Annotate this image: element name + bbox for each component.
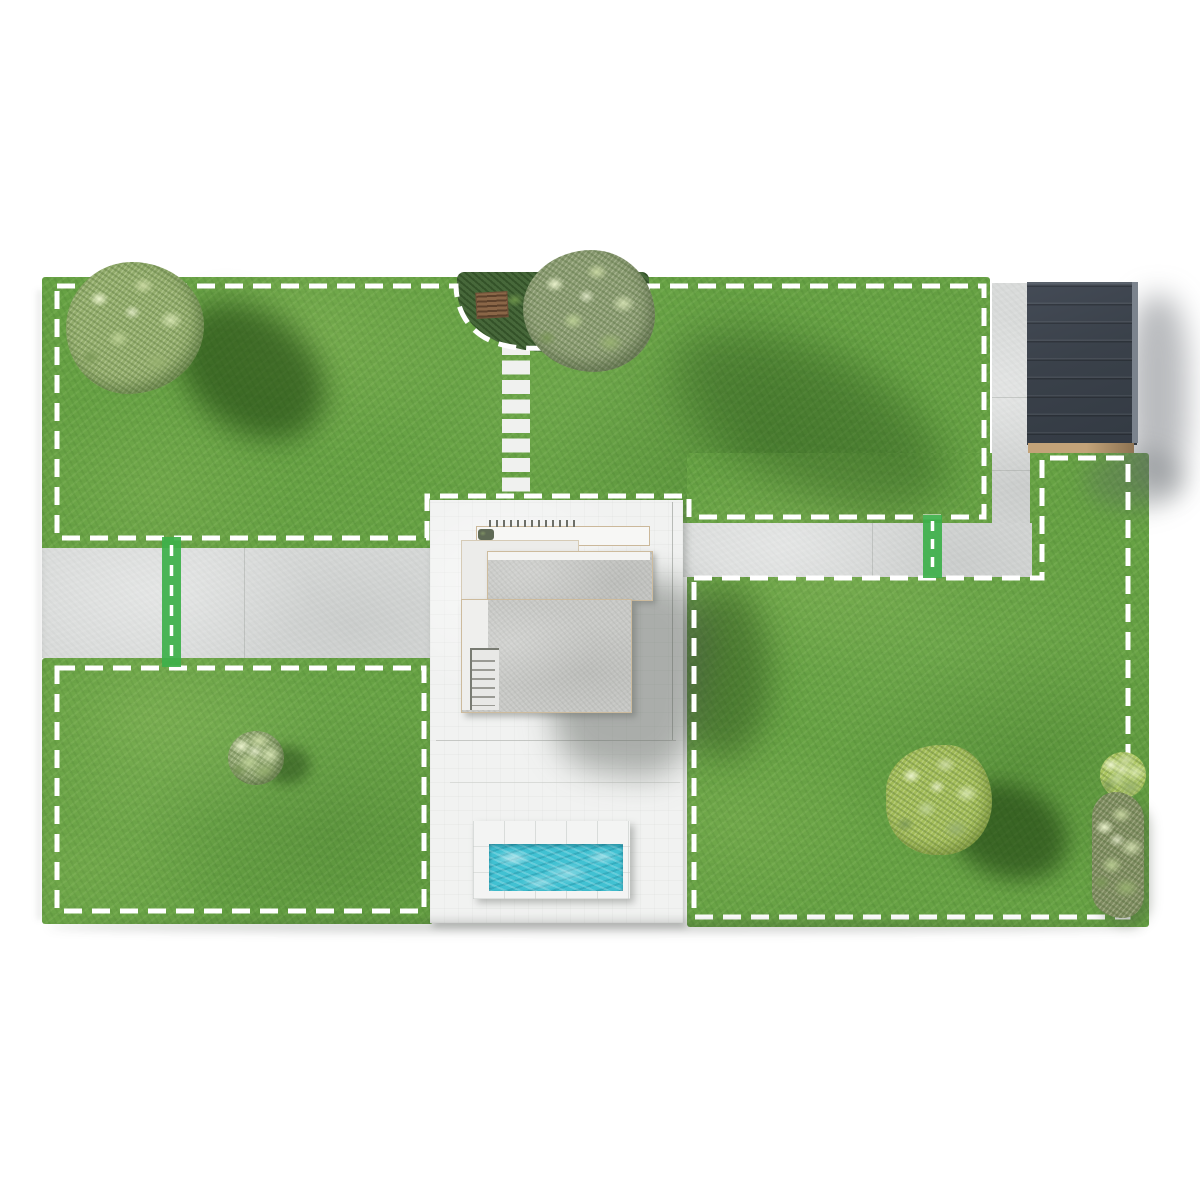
edge-shrub-bright (1100, 752, 1146, 798)
zone-boundary-bottom-left-lawn[interactable] (57, 668, 424, 911)
scene-bottom-shadow (48, 921, 1143, 932)
bright-tree-bottom-right (886, 745, 992, 855)
garden-map-canvas (0, 0, 1200, 1200)
passage-marker-left[interactable] (162, 537, 181, 667)
scene-left-shadow (37, 290, 42, 920)
passage-marker-right[interactable] (923, 515, 942, 578)
edge-shrubs-olive (1092, 792, 1144, 918)
zone-overlay (0, 0, 1200, 1200)
round-shrub-bottom-left (228, 731, 284, 785)
